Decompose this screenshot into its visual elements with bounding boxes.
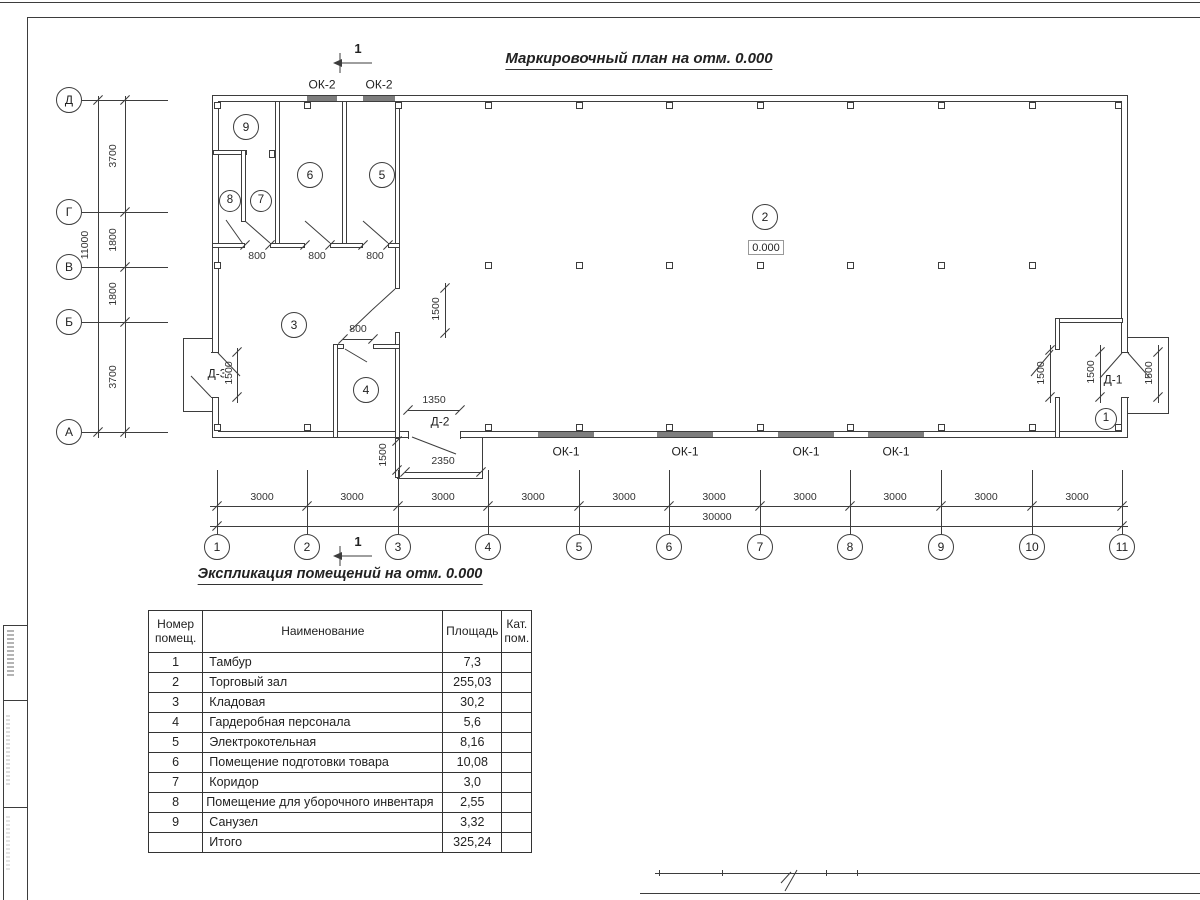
extension-line: [307, 470, 308, 534]
room-marker-5: 5: [369, 162, 395, 188]
stamp-vertical-text: [6, 815, 10, 870]
window-label-ok1: ОК-1: [552, 445, 581, 458]
table-row: 2 Торговый зал 255,03: [149, 673, 532, 693]
room-area: 2,55: [443, 793, 502, 813]
window-ok1: [657, 431, 713, 438]
room-marker-1: 1: [1095, 408, 1117, 430]
door-leaf: [412, 437, 456, 454]
table-row: 3 Кладовая 30,2: [149, 693, 532, 713]
extension-line: [669, 470, 670, 534]
stamp-strip-divider: [3, 807, 27, 808]
column-mark: [938, 262, 945, 269]
sheet-edge-line: [0, 2, 1200, 3]
dim-3000: 3000: [249, 492, 274, 504]
room-num: 6: [149, 753, 203, 773]
dim-row-segment: 3700: [108, 143, 120, 168]
partition-wall: [270, 243, 305, 248]
column-mark: [576, 102, 583, 109]
axis-circle-col: 9: [928, 534, 954, 560]
window-label-ok1: ОК-1: [671, 445, 700, 458]
stamp-strip-divider: [3, 700, 27, 701]
jamb: [211, 352, 219, 353]
dim-row-segment: 1800: [108, 227, 120, 252]
room-name: Электрокотельная: [203, 733, 443, 753]
room-num: 3: [149, 693, 203, 713]
table-row: 6 Помещение подготовки товара 10,08: [149, 753, 532, 773]
porch-left-outline: [183, 338, 184, 412]
room-num: 2: [149, 673, 203, 693]
axis-circle-col: 2: [294, 534, 320, 560]
column-mark: [847, 424, 854, 431]
table-total-row: Итого 325,24: [149, 833, 532, 853]
extension-line: [488, 470, 489, 534]
column-mark: [214, 102, 221, 109]
window-label-ok2: ОК-2: [365, 78, 394, 91]
column-mark: [304, 424, 311, 431]
column-mark: [485, 262, 492, 269]
room-marker-7: 7: [250, 190, 272, 212]
stamp-strip-divider: [3, 625, 27, 626]
column-mark: [395, 102, 402, 109]
dim-3000: 3000: [973, 492, 998, 504]
frame-top-line: [27, 17, 1200, 18]
table-row: 8 Помещение для уборочного инвентаря 2,5…: [149, 793, 532, 813]
dim-door-800: 800: [307, 251, 327, 263]
table-row: 4 Гардеробная персонала 5,6: [149, 713, 532, 733]
room-num: 5: [149, 733, 203, 753]
dim-1500: 1500: [224, 360, 236, 385]
axis-circle-col: 1: [204, 534, 230, 560]
partition-wall: [275, 101, 280, 246]
dim-3000: 3000: [882, 492, 907, 504]
axis-circle-col: 3: [385, 534, 411, 560]
room-cat: [502, 733, 532, 753]
room-name: Кладовая: [203, 693, 443, 713]
section-arrowhead: [333, 59, 342, 67]
titleblock-tick: [659, 870, 660, 876]
column-mark: [938, 424, 945, 431]
dim-row-total: 11000: [80, 230, 92, 260]
dim-30000: 30000: [701, 512, 732, 524]
tambour-wall: [1055, 318, 1060, 350]
dim-door-800: 800: [365, 251, 385, 263]
column-mark: [847, 102, 854, 109]
room-cat: [502, 653, 532, 673]
column-mark: [1115, 102, 1122, 109]
extension-line: [398, 470, 399, 534]
titleblock-top-line: [655, 873, 1200, 874]
titleblock-tick: [722, 870, 723, 876]
axis-circle-col: 11: [1109, 534, 1135, 560]
jamb: [408, 431, 409, 439]
table-row: 7 Коридор 3,0: [149, 773, 532, 793]
dim-3000: 3000: [611, 492, 636, 504]
column-mark: [757, 102, 764, 109]
frame-left-line: [27, 17, 28, 900]
jamb: [1121, 352, 1129, 353]
dim-door-800: 800: [348, 324, 368, 336]
total-area: 325,24: [443, 833, 502, 853]
dim-row-segment: 3700: [108, 364, 120, 389]
dim-1500: 1500: [1086, 359, 1098, 384]
axis-circle-col: 5: [566, 534, 592, 560]
room-area: 10,08: [443, 753, 502, 773]
room-name: Тамбур: [203, 653, 443, 673]
column-mark: [1029, 262, 1036, 269]
room-cat: [502, 713, 532, 733]
room-num: 8: [149, 793, 203, 813]
partition-wall: [241, 150, 246, 222]
room-area: 255,03: [443, 673, 502, 693]
dim-1500: 1500: [431, 296, 443, 321]
col-header-area: Площадь: [443, 611, 502, 653]
room-marker-9: 9: [233, 114, 259, 140]
axis-circle-row: Д: [56, 87, 82, 113]
dim-line: [405, 472, 481, 473]
titleblock-tick: [857, 870, 858, 876]
room-marker-4: 4: [353, 377, 379, 403]
dim-3000: 3000: [520, 492, 545, 504]
room-marker-8: 8: [219, 190, 241, 212]
section-mark-label: 1: [353, 42, 362, 56]
col-header-num: Номер помещ.: [149, 611, 203, 653]
room-name: Торговый зал: [203, 673, 443, 693]
room-num: 4: [149, 713, 203, 733]
partition-wall: [342, 101, 347, 246]
room-cat: [502, 753, 532, 773]
table-row: 5 Электрокотельная 8,16: [149, 733, 532, 753]
porch-left-outline: [183, 411, 212, 412]
door-stop: [269, 150, 275, 158]
column-mark: [938, 102, 945, 109]
dim-3000: 3000: [792, 492, 817, 504]
dim-line: [408, 410, 460, 411]
extension-line: [850, 470, 851, 534]
window-ok2: [307, 95, 337, 102]
section-mark-label: 1: [353, 535, 362, 549]
door-label-d2: Д-2: [430, 415, 451, 428]
jamb: [460, 431, 461, 439]
porch-bottom-outline: [397, 478, 483, 479]
col-header-cat: Кат. пом.: [502, 611, 532, 653]
column-mark: [1029, 102, 1036, 109]
dim-3000: 3000: [701, 492, 726, 504]
room-area: 3,0: [443, 773, 502, 793]
col-header-name: Наименование: [203, 611, 443, 653]
room-marker-3: 3: [281, 312, 307, 338]
room-area: 3,32: [443, 813, 502, 833]
extension-line: [579, 470, 580, 534]
porch-bottom-outline: [482, 438, 483, 479]
stamp-vertical-text: [7, 630, 14, 676]
axis-circle-row: В: [56, 254, 82, 280]
porch-left-outline: [183, 338, 212, 339]
schedule-title: Экспликация помещений на отм. 0.000: [198, 566, 483, 585]
column-mark: [576, 262, 583, 269]
room-area: 5,6: [443, 713, 502, 733]
window-ok1: [778, 431, 834, 438]
axis-circle-col: 7: [747, 534, 773, 560]
axis-circle-col: 6: [656, 534, 682, 560]
extension-line: [941, 470, 942, 534]
plan-title: Маркировочный план на отм. 0.000: [505, 50, 772, 70]
room-marker-2: 2: [752, 204, 778, 230]
room-cat: [502, 773, 532, 793]
room-schedule-table: Номер помещ. Наименование Площадь Кат. п…: [148, 610, 532, 853]
table-header-row: Номер помещ. Наименование Площадь Кат. п…: [149, 611, 532, 653]
dim-3000: 3000: [1064, 492, 1089, 504]
level-mark: 0.000: [751, 242, 781, 254]
column-mark: [666, 262, 673, 269]
table-row: 9 Санузел 3,32: [149, 813, 532, 833]
window-ok2: [363, 95, 395, 102]
dim-1500: 1500: [378, 442, 390, 467]
axis-circle-col: 8: [837, 534, 863, 560]
axis-circle-row: Г: [56, 199, 82, 225]
section-arrowhead: [333, 552, 342, 560]
room-marker-6: 6: [297, 162, 323, 188]
room-num: 7: [149, 773, 203, 793]
column-mark: [485, 424, 492, 431]
window-ok1: [868, 431, 924, 438]
total-cat: [502, 833, 532, 853]
extension-line: [1032, 470, 1033, 534]
window-label-ok1: ОК-1: [792, 445, 821, 458]
drawing-sheet: Маркировочный план на отм. 0.000: [0, 0, 1200, 900]
room-area: 8,16: [443, 733, 502, 753]
stamp-vertical-text: [6, 715, 10, 785]
total-blank: [149, 833, 203, 853]
room-name: Помещение для уборочного инвентаря: [203, 793, 443, 813]
door-label-d1: Д-1: [1103, 373, 1124, 386]
porch-right-outline: [1128, 413, 1169, 414]
partition-wall: [395, 101, 400, 289]
door-opening-d2: [409, 431, 460, 439]
partition-wall: [333, 344, 338, 438]
room-name: Коридор: [203, 773, 443, 793]
titleblock-line: [640, 893, 1200, 894]
room-name: Санузел: [203, 813, 443, 833]
column-mark: [304, 102, 311, 109]
jamb: [211, 397, 219, 398]
extension-line: [760, 470, 761, 534]
column-mark: [666, 424, 673, 431]
dim-3000: 3000: [430, 492, 455, 504]
axis-circle-row: А: [56, 419, 82, 445]
jamb: [1121, 397, 1129, 398]
column-mark: [1029, 424, 1036, 431]
window-label-ok2: ОК-2: [308, 78, 337, 91]
dim-1500: 1500: [1036, 360, 1048, 385]
dim-row-segment: 1800: [108, 281, 120, 306]
column-mark: [214, 262, 221, 269]
window-label-ok1: ОК-1: [882, 445, 911, 458]
room-cat: [502, 673, 532, 693]
room-cat: [502, 813, 532, 833]
column-mark: [1115, 424, 1122, 431]
axis-circle-col: 10: [1019, 534, 1045, 560]
titleblock-tick: [826, 870, 827, 876]
porch-right-outline: [1128, 337, 1169, 338]
total-label: Итого: [203, 833, 443, 853]
room-cat: [502, 693, 532, 713]
room-cat: [502, 793, 532, 813]
column-mark: [485, 102, 492, 109]
column-mark: [847, 262, 854, 269]
porch-right-outline: [1168, 337, 1169, 414]
column-mark: [757, 424, 764, 431]
dim-2350: 2350: [430, 456, 455, 468]
column-mark: [214, 424, 221, 431]
axis-circle-row: Б: [56, 309, 82, 335]
room-name: Гардеробная персонала: [203, 713, 443, 733]
dim-line: [343, 339, 373, 340]
room-area: 7,3: [443, 653, 502, 673]
room-name: Помещение подготовки товара: [203, 753, 443, 773]
tambour-wall: [1055, 318, 1123, 323]
dim-3000: 3000: [339, 492, 364, 504]
dim-line: [210, 526, 1128, 527]
column-mark: [666, 102, 673, 109]
room-area: 30,2: [443, 693, 502, 713]
partition-wall: [373, 344, 400, 349]
table-row: 1 Тамбур 7,3: [149, 653, 532, 673]
dim-door-800: 800: [247, 251, 267, 263]
tambour-wall: [1055, 397, 1060, 438]
dim-1350: 1350: [421, 395, 446, 407]
column-mark: [576, 424, 583, 431]
stamp-strip-line: [3, 625, 4, 900]
dim-line: [98, 96, 99, 438]
room-num: 1: [149, 653, 203, 673]
axis-circle-col: 4: [475, 534, 501, 560]
room-num: 9: [149, 813, 203, 833]
dim-1500: 1500: [1144, 360, 1156, 385]
window-ok1: [538, 431, 594, 438]
column-mark: [757, 262, 764, 269]
